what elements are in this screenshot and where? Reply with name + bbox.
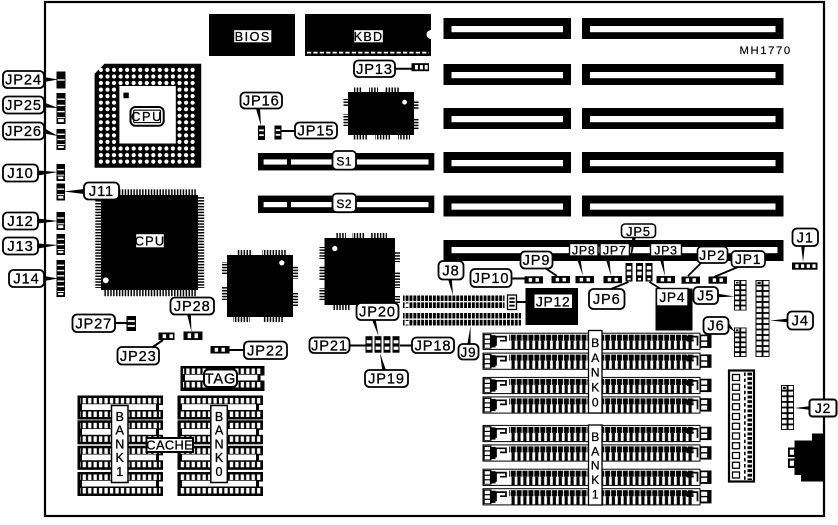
svg-text:TAG: TAG <box>205 371 237 387</box>
svg-text:CPU: CPU <box>135 234 166 249</box>
svg-text:JP12: JP12 <box>536 294 571 309</box>
svg-text:JP23: JP23 <box>120 349 157 365</box>
svg-text:JP24: JP24 <box>5 73 42 89</box>
svg-text:S1: S1 <box>336 154 352 168</box>
svg-text:A: A <box>591 444 599 458</box>
svg-text:A: A <box>591 351 599 365</box>
svg-text:1: 1 <box>592 488 599 502</box>
svg-text:JP21: JP21 <box>311 338 348 354</box>
svg-text:K: K <box>116 451 125 465</box>
svg-text:J2: J2 <box>815 401 831 416</box>
svg-text:JP4: JP4 <box>659 290 685 305</box>
svg-text:N: N <box>591 366 600 380</box>
svg-text:JP2: JP2 <box>699 248 725 263</box>
svg-text:J9: J9 <box>461 345 477 360</box>
svg-text:N: N <box>115 437 124 451</box>
svg-text:JP16: JP16 <box>243 94 280 110</box>
svg-text:JP20: JP20 <box>359 305 396 321</box>
svg-text:JP13: JP13 <box>356 62 393 78</box>
svg-text:J13: J13 <box>7 239 33 255</box>
svg-text:J14: J14 <box>13 272 39 288</box>
svg-text:JP6: JP6 <box>593 292 621 308</box>
svg-text:JP19: JP19 <box>368 372 405 388</box>
svg-text:J1: J1 <box>797 230 814 246</box>
svg-text:J12: J12 <box>7 214 33 230</box>
svg-text:B: B <box>591 430 599 444</box>
svg-text:MH1770: MH1770 <box>740 45 792 57</box>
svg-text:J4: J4 <box>792 314 809 330</box>
svg-text:K: K <box>215 451 224 465</box>
svg-text:B: B <box>591 336 599 350</box>
svg-text:N: N <box>214 437 223 451</box>
svg-text:JP27: JP27 <box>75 316 112 332</box>
svg-text:J5: J5 <box>697 289 714 305</box>
svg-text:0: 0 <box>592 396 599 410</box>
svg-text:JP10: JP10 <box>473 271 510 287</box>
svg-text:0: 0 <box>216 465 223 479</box>
svg-text:J6: J6 <box>707 319 724 335</box>
svg-text:JP15: JP15 <box>298 124 335 140</box>
svg-text:1: 1 <box>116 465 123 479</box>
svg-text:J8: J8 <box>442 263 459 279</box>
svg-text:JP5: JP5 <box>626 224 651 239</box>
svg-text:JP3: JP3 <box>654 244 677 258</box>
svg-text:JP1: JP1 <box>735 252 761 267</box>
svg-text:JP22: JP22 <box>247 343 284 359</box>
svg-text:J10: J10 <box>7 166 33 182</box>
svg-text:JP18: JP18 <box>415 338 452 354</box>
svg-text:J11: J11 <box>89 184 114 200</box>
svg-text:JP25: JP25 <box>5 98 42 114</box>
svg-text:JP9: JP9 <box>523 253 551 269</box>
svg-text:A: A <box>116 424 125 438</box>
svg-text:JP7: JP7 <box>603 244 626 258</box>
svg-text:K: K <box>591 381 599 395</box>
svg-text:JP28: JP28 <box>174 299 211 315</box>
svg-text:N: N <box>591 459 600 473</box>
svg-text:B: B <box>215 410 223 424</box>
svg-text:B: B <box>116 410 124 424</box>
svg-text:BIOS: BIOS <box>235 30 271 44</box>
svg-text:S2: S2 <box>336 197 352 211</box>
svg-text:KBD: KBD <box>354 30 384 44</box>
svg-text:A: A <box>215 424 224 438</box>
svg-text:K: K <box>591 473 599 487</box>
svg-text:JP8: JP8 <box>572 244 595 258</box>
svg-text:CACHE: CACHE <box>146 438 193 453</box>
svg-text:JP26: JP26 <box>5 124 42 140</box>
svg-text:CPU: CPU <box>131 109 163 124</box>
